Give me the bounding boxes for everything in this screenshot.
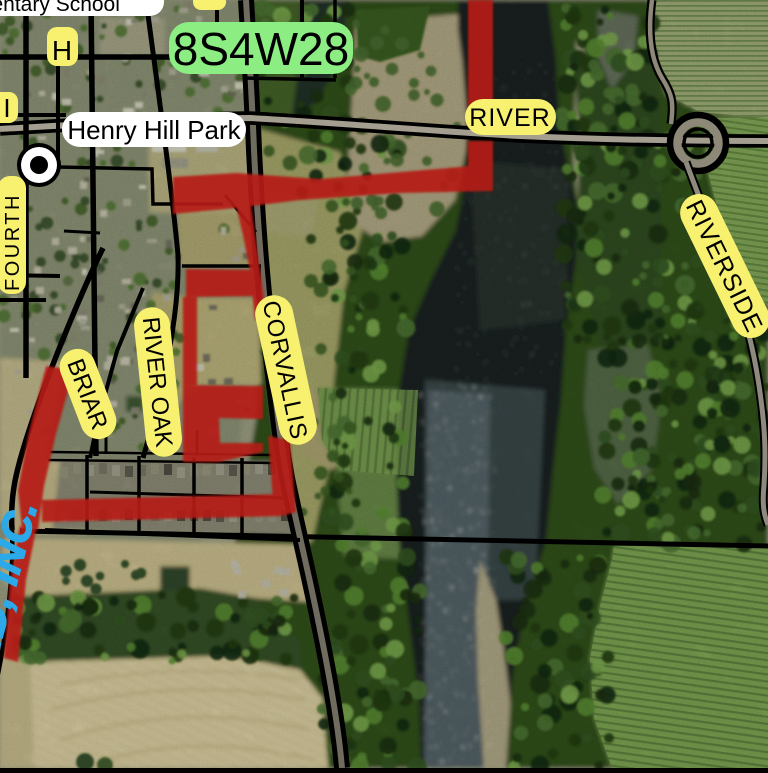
svg-text:RIVER: RIVER — [469, 104, 550, 132]
svg-text:FOURTH: FOURTH — [2, 193, 24, 291]
svg-text:mentary School: mentary School — [0, 0, 120, 16]
svg-text:H: H — [52, 35, 72, 66]
svg-text:8S4W28: 8S4W28 — [173, 23, 349, 75]
svg-text:Henry Hill Park: Henry Hill Park — [67, 115, 241, 145]
svg-text:I: I — [3, 93, 10, 123]
